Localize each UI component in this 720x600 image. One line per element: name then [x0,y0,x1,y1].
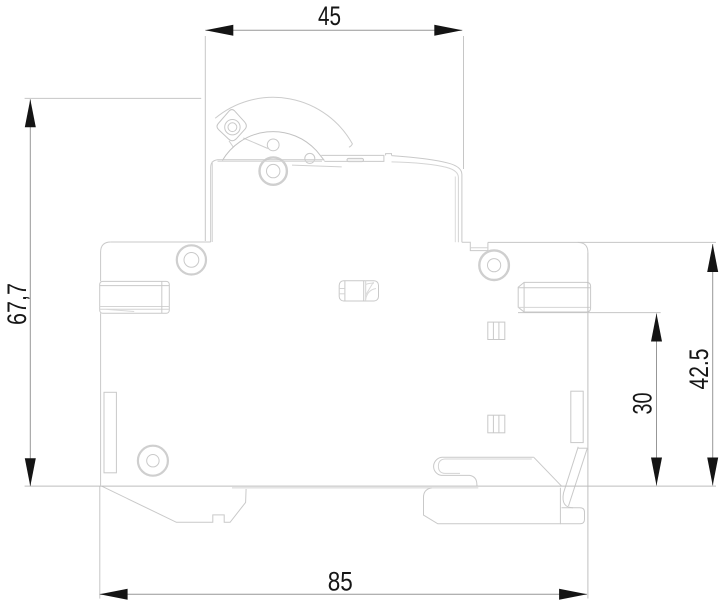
svg-text:85: 85 [328,567,353,597]
svg-text:67,7: 67,7 [2,283,32,325]
svg-text:42.5: 42.5 [684,349,714,390]
svg-text:30: 30 [628,393,658,415]
svg-text:45: 45 [318,1,341,31]
